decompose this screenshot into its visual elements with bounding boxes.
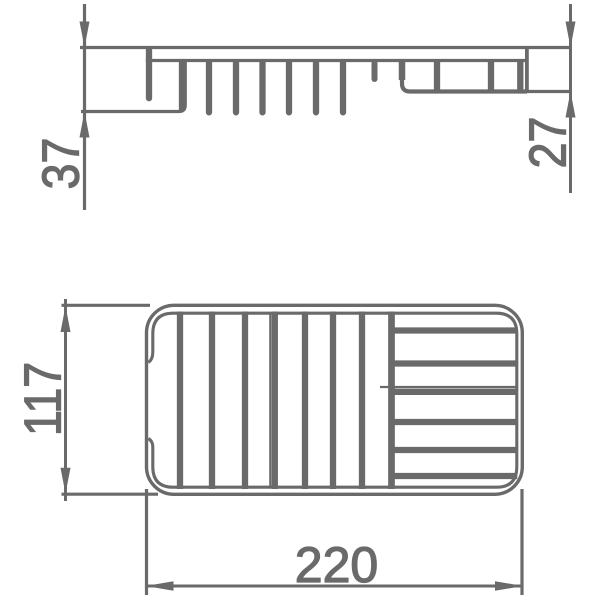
svg-text:37: 37 xyxy=(33,138,90,190)
svg-text:117: 117 xyxy=(15,362,72,436)
svg-text:220: 220 xyxy=(295,537,378,593)
svg-text:27: 27 xyxy=(520,117,577,169)
